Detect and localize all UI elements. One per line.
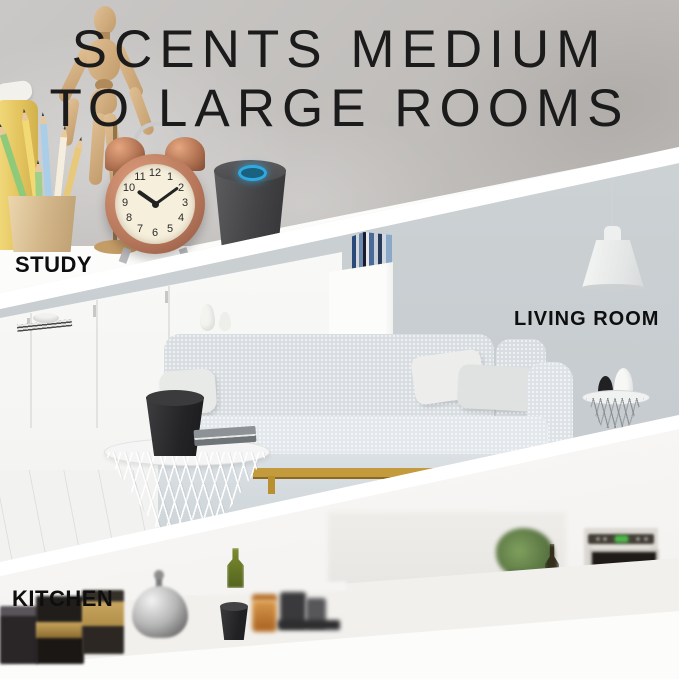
pencil-cup (8, 196, 76, 252)
clock-numeral: 11 (133, 171, 147, 183)
alarm-clock: 12 1 2 3 4 5 6 7 8 9 10 11 (103, 122, 207, 262)
oven-knob (596, 537, 600, 541)
oven-knob (636, 537, 640, 541)
dark-tray (278, 620, 340, 630)
clock-numeral: 7 (133, 223, 147, 235)
clock-center-dot (152, 201, 159, 208)
white-vase (200, 304, 215, 331)
cabinet-handle (93, 305, 96, 317)
pendant-lamp-cord (611, 176, 613, 228)
oven-knob (603, 537, 607, 541)
headline: SCENTS MEDIUM TO LARGE ROOMS (0, 20, 679, 139)
diffuser-blue-light-ring (238, 165, 267, 181)
diffuser-cap (146, 390, 204, 406)
wire-side-table (582, 388, 648, 430)
clock-numeral: 6 (148, 227, 162, 239)
headline-line-2: TO LARGE ROOMS (0, 79, 679, 138)
diffuser-device-kitchen (220, 602, 248, 640)
label-study: STUDY (15, 252, 92, 278)
clock-numeral: 8 (122, 212, 136, 224)
side-table-wire-base (586, 398, 644, 428)
clock-numeral: 12 (148, 167, 162, 179)
clock-leg (119, 247, 132, 264)
diffuser-cap (220, 602, 248, 611)
clock-numeral: 10 (122, 182, 136, 194)
microwave-control-panel (588, 534, 654, 544)
headline-line-1: SCENTS MEDIUM (0, 20, 679, 79)
oven-knob (644, 537, 648, 541)
green-glass-bottle (227, 548, 244, 588)
clock-numeral: 9 (118, 197, 132, 209)
pendant-lamp-shade (582, 240, 644, 288)
pendant-lamp-rim (582, 284, 644, 291)
cabinet-handle (165, 291, 168, 303)
amber-jar (252, 600, 277, 632)
chrome-kettle (132, 586, 188, 638)
green-led-display (615, 536, 628, 542)
clock-numeral: 5 (163, 223, 177, 235)
product-lifestyle-image: 12 1 2 3 4 5 6 7 8 9 10 11 (0, 0, 679, 679)
label-living-room: LIVING ROOM (514, 308, 659, 331)
diffuser-body (220, 606, 248, 640)
clock-numeral: 3 (178, 197, 192, 209)
tea-tin (0, 606, 38, 664)
label-kitchen: KITCHEN (12, 586, 113, 612)
cabinet-seam (96, 300, 98, 428)
white-bowl (33, 313, 59, 323)
